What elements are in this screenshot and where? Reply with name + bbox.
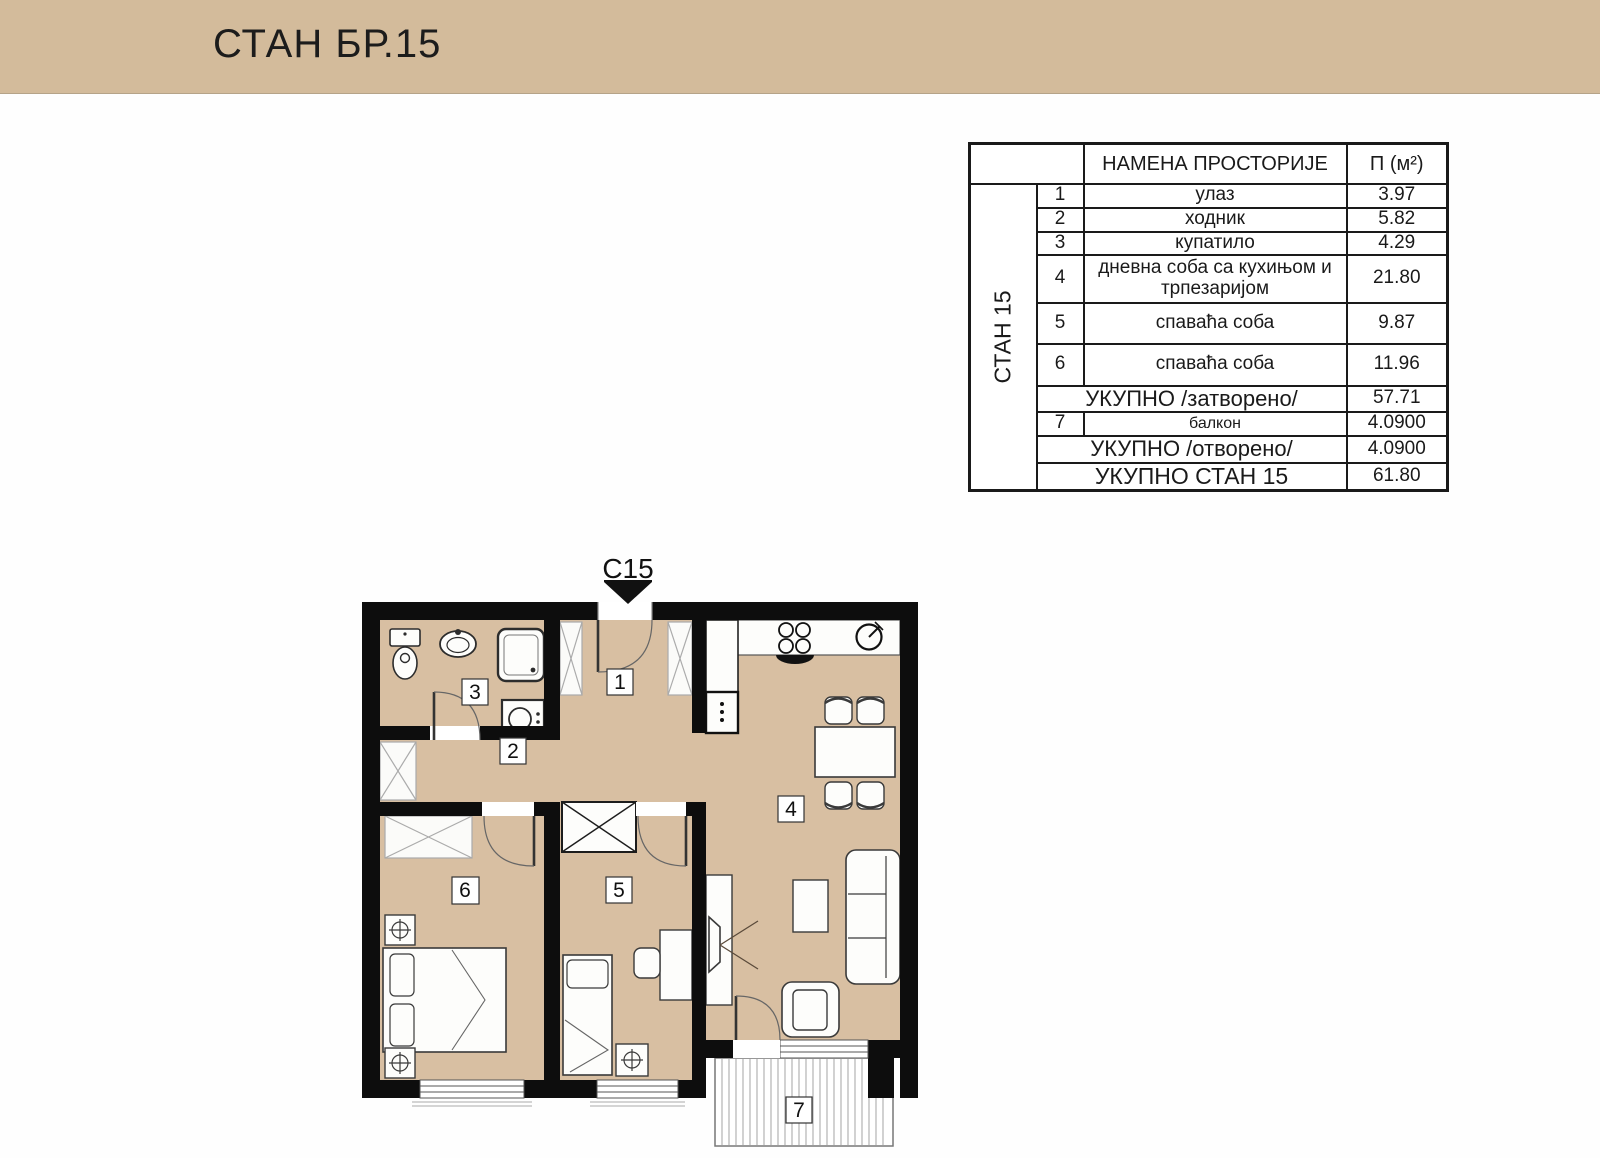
wall-bathroom-right bbox=[544, 602, 560, 740]
wardrobe-icon bbox=[380, 742, 416, 800]
room-number: 7 bbox=[793, 1099, 805, 1122]
oven-icon bbox=[706, 692, 738, 733]
nightstand-icon bbox=[616, 1044, 648, 1076]
window bbox=[590, 1080, 685, 1106]
wall-left bbox=[362, 602, 380, 1098]
shower-icon bbox=[498, 629, 544, 681]
chair-icon bbox=[825, 782, 852, 809]
entrance-arrow-icon bbox=[604, 582, 652, 604]
nightstand-icon bbox=[385, 1048, 415, 1078]
room-label-3: 3 bbox=[462, 679, 488, 705]
room-label-1: 1 bbox=[607, 669, 633, 695]
dining-table bbox=[815, 727, 895, 777]
wall-divider-6-5 bbox=[544, 802, 560, 1098]
wall-top-left bbox=[362, 602, 598, 620]
wall-bathroom-bottom bbox=[362, 726, 430, 740]
chair-icon bbox=[825, 697, 852, 724]
floor-plan: C15 1 2 3 4 5 6 7 bbox=[0, 0, 1600, 1158]
coffee-table bbox=[793, 880, 828, 932]
sofa-icon bbox=[846, 850, 900, 984]
room-label-5: 5 bbox=[606, 877, 632, 903]
double-bed-icon bbox=[383, 948, 506, 1052]
wardrobe-icon bbox=[562, 802, 636, 852]
room-number: 6 bbox=[459, 879, 471, 902]
nightstand-icon bbox=[385, 915, 415, 945]
chair-icon bbox=[857, 697, 884, 724]
wall-balcony-side bbox=[868, 1058, 894, 1098]
room-number: 5 bbox=[613, 879, 625, 902]
wall-right bbox=[900, 602, 918, 1098]
room-label-6: 6 bbox=[452, 877, 479, 904]
room-number: 4 bbox=[785, 798, 797, 821]
chair-icon bbox=[857, 782, 884, 809]
wardrobe-icon bbox=[560, 622, 582, 695]
wall-mid bbox=[362, 802, 482, 816]
window bbox=[412, 1080, 532, 1106]
wall-divider-5-4 bbox=[692, 802, 706, 1098]
toilet-icon bbox=[390, 629, 420, 679]
room-number: 2 bbox=[507, 740, 519, 763]
room-number: 3 bbox=[469, 681, 481, 704]
entrance-marker-label: C15 bbox=[602, 553, 653, 584]
wardrobe-icon bbox=[668, 622, 692, 695]
window bbox=[780, 1040, 868, 1058]
wall-top-right bbox=[652, 602, 918, 620]
wall-kitchen bbox=[692, 620, 706, 733]
room-number: 1 bbox=[614, 671, 626, 694]
entrance-marker: C15 bbox=[602, 553, 653, 604]
room-label-4: 4 bbox=[778, 796, 804, 822]
armchair-icon bbox=[782, 982, 839, 1037]
wardrobe-icon bbox=[385, 816, 472, 858]
single-bed-icon bbox=[563, 955, 612, 1075]
room-label-7: 7 bbox=[786, 1097, 812, 1123]
room-label-2: 2 bbox=[500, 738, 526, 764]
fridge-icon bbox=[706, 620, 738, 692]
